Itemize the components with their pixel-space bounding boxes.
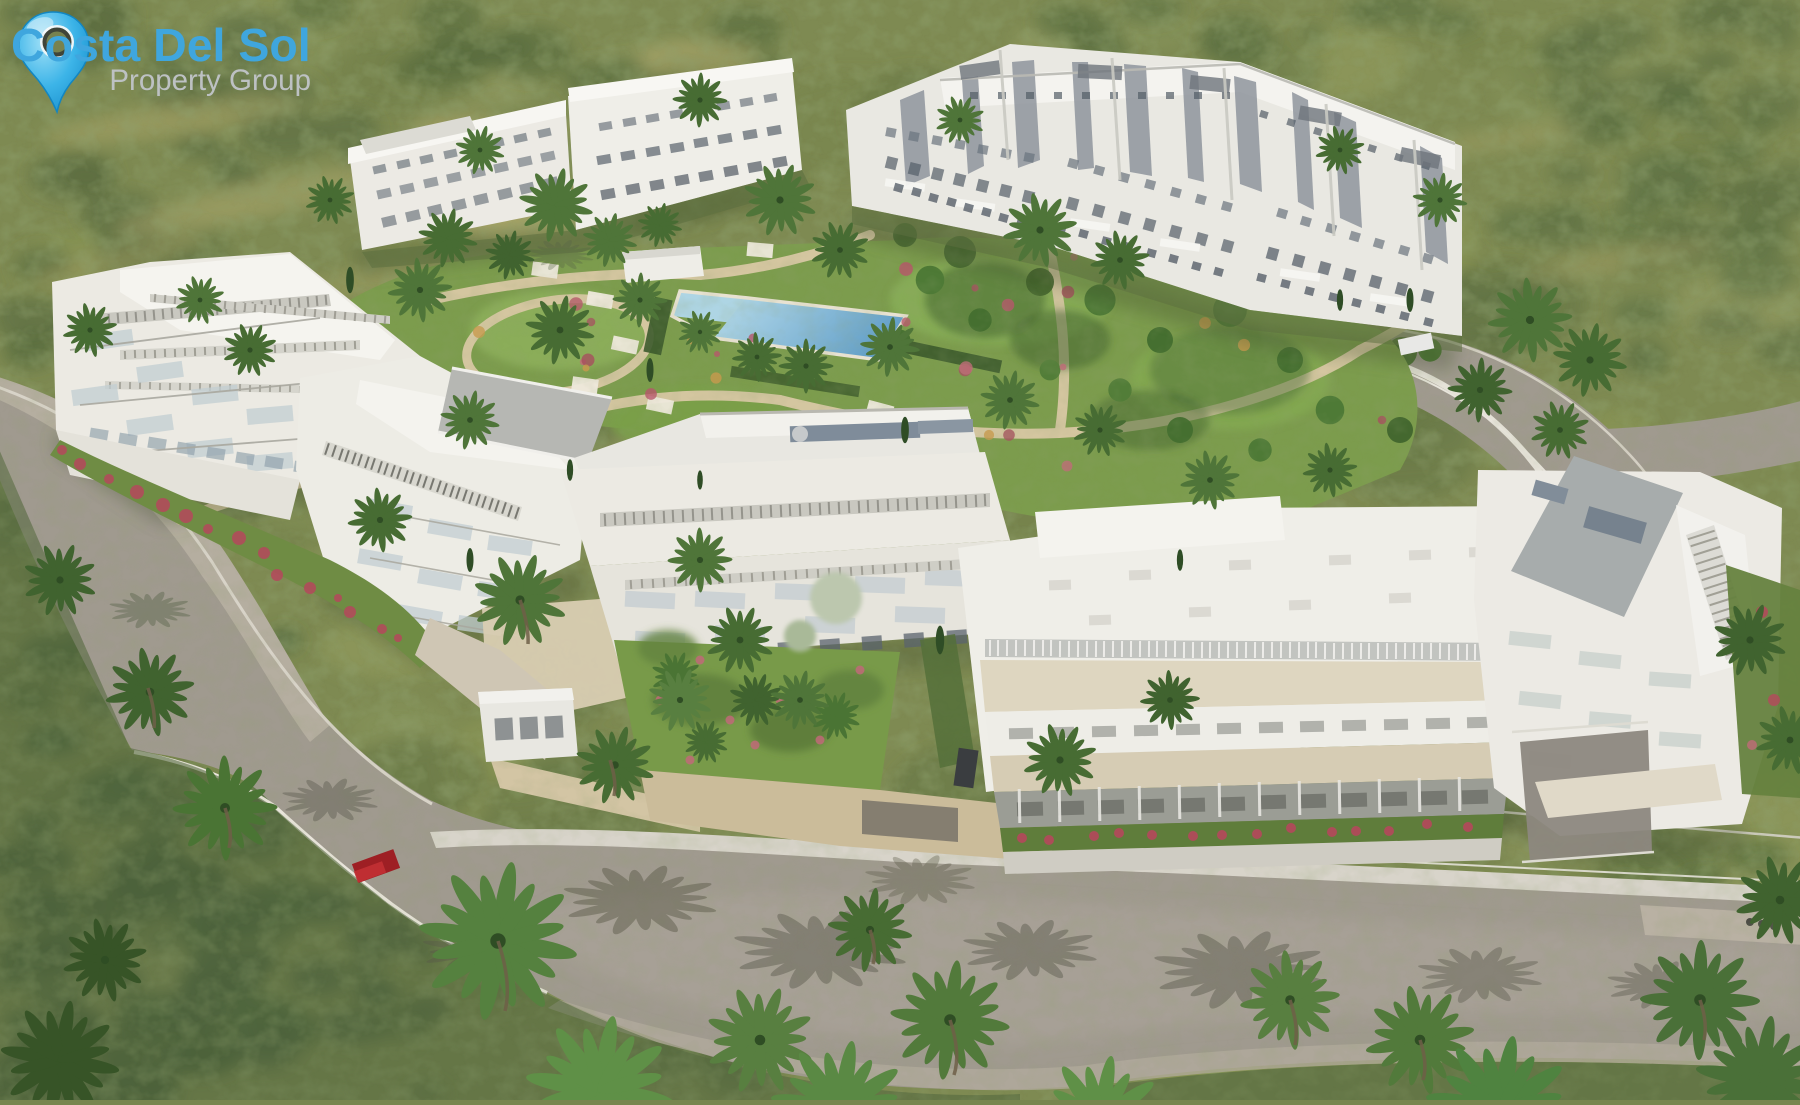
svg-text:Property Group: Property Group [109,64,311,97]
